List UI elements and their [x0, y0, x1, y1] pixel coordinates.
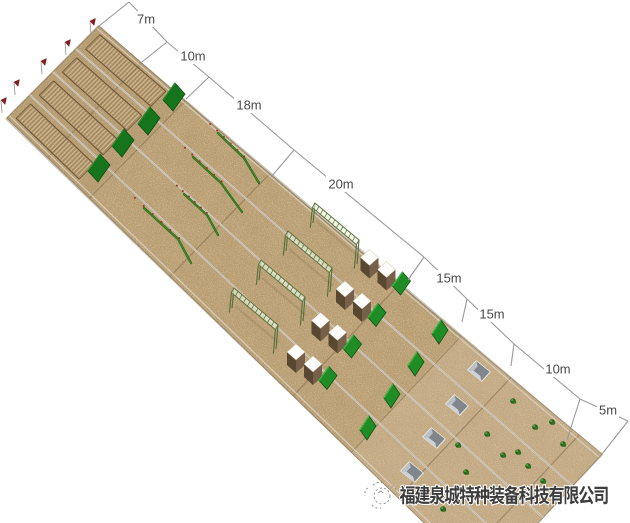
svg-text:10m: 10m [545, 362, 570, 377]
svg-text:20m: 20m [328, 177, 353, 192]
svg-text:7m: 7m [137, 12, 155, 27]
svg-text:18m: 18m [236, 98, 261, 113]
svg-text:15m: 15m [479, 307, 504, 322]
svg-text:15m: 15m [436, 271, 461, 286]
svg-text:10m: 10m [180, 49, 205, 64]
svg-text:5m: 5m [599, 403, 617, 418]
